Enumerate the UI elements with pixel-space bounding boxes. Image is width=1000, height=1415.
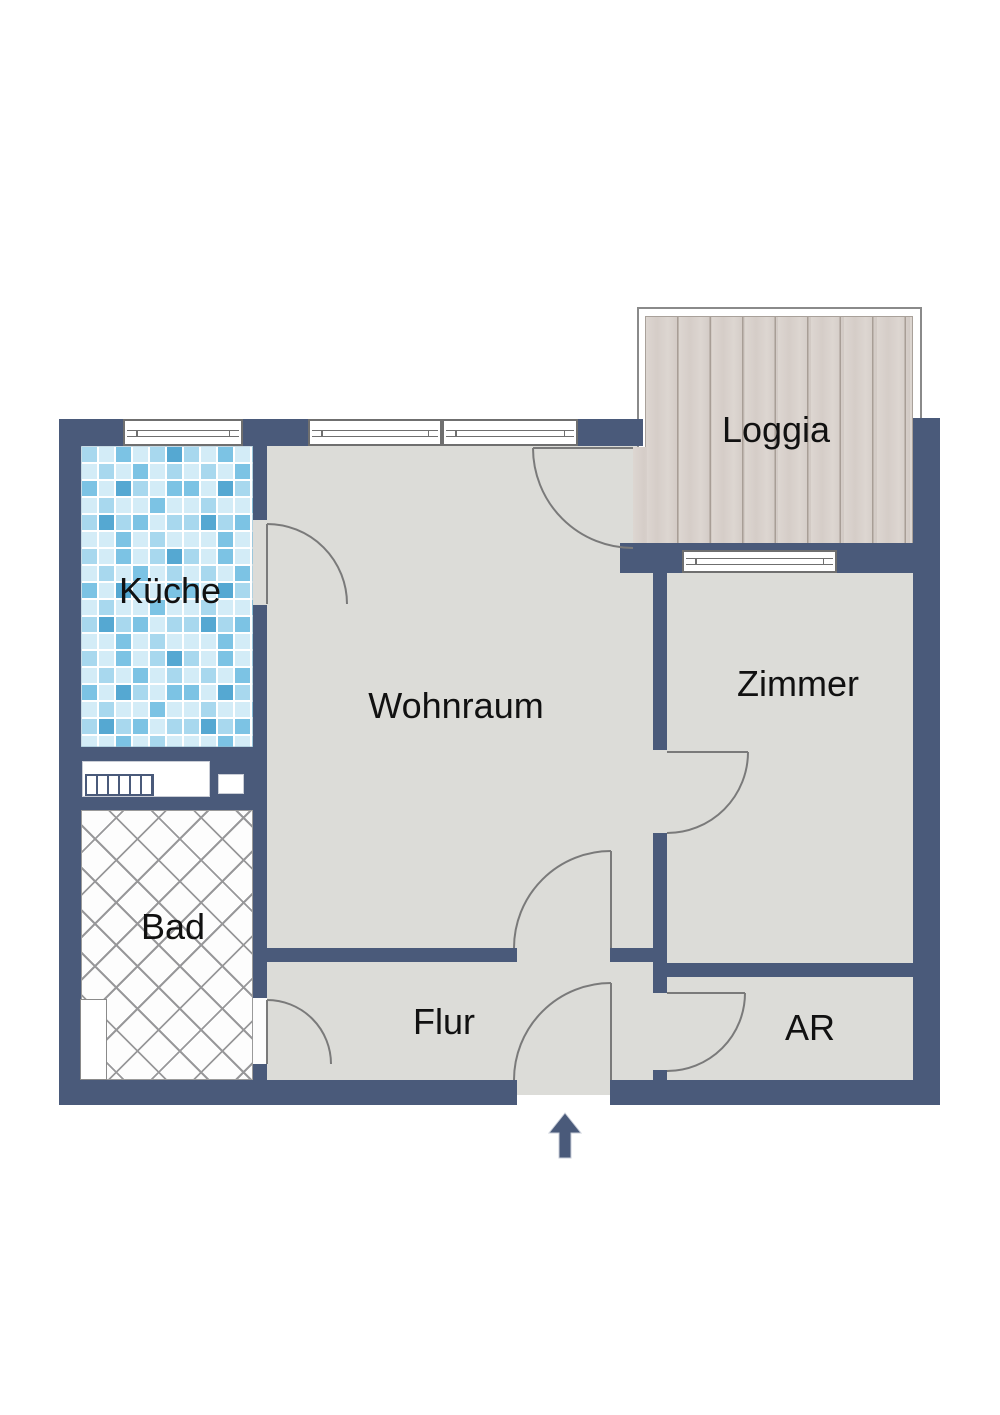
room-label-zimmer: Zimmer: [737, 666, 859, 702]
entrance-arrow-icon: [549, 1113, 581, 1158]
door-arc-loggia: [533, 448, 633, 548]
door-arc-ar: [667, 993, 745, 1071]
room-label-wohnraum: Wohnraum: [368, 688, 543, 724]
door-arc-entrance: [514, 983, 611, 1080]
room-label-bad: Bad: [141, 909, 205, 945]
room-label-ar: AR: [785, 1010, 835, 1046]
floor-plan: Küche Wohnraum Loggia Zimmer Bad Flur AR: [0, 0, 1000, 1415]
door-arc-zimmer: [667, 752, 748, 833]
door-arc-kueche: [267, 524, 347, 604]
door-arc-bad: [267, 1000, 331, 1064]
room-label-flur: Flur: [413, 1004, 475, 1040]
door-arc-wohnraum: [514, 851, 611, 948]
room-label-loggia: Loggia: [722, 412, 830, 448]
room-label-kueche: Küche: [119, 573, 221, 609]
